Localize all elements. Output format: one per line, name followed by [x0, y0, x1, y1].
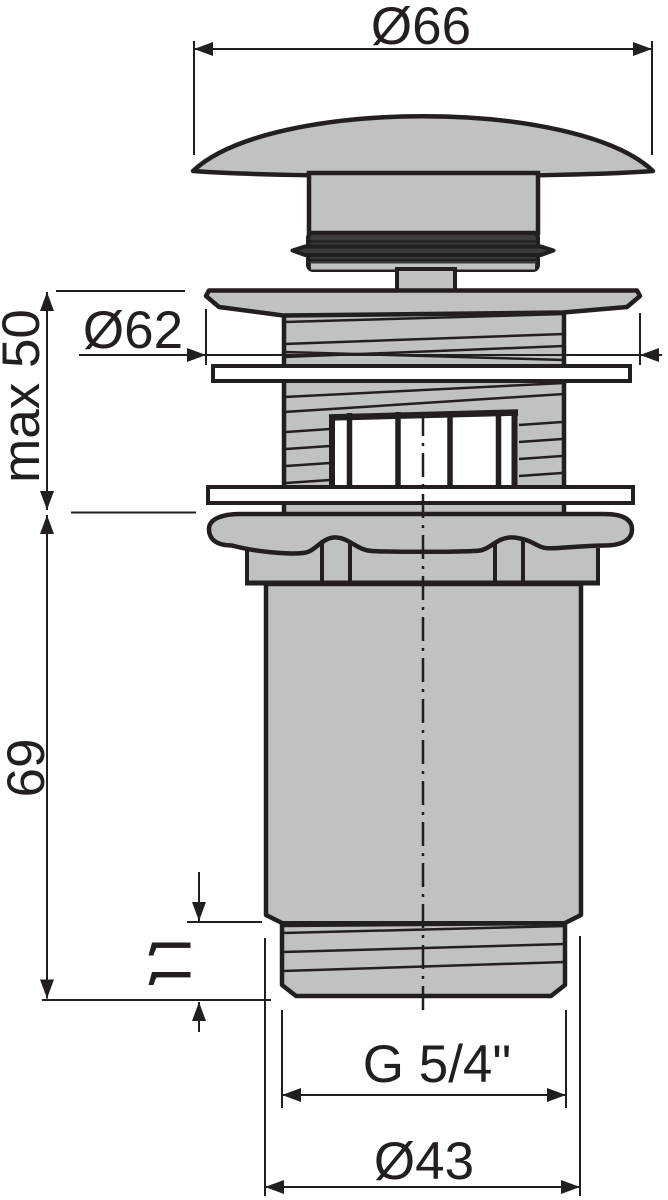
svg-text:Ø43: Ø43	[374, 1132, 474, 1191]
svg-text:69: 69	[0, 739, 56, 798]
svg-text:Ø62: Ø62	[83, 301, 183, 360]
svg-text:G 5/4": G 5/4"	[363, 1035, 511, 1094]
svg-text:Ø66: Ø66	[371, 0, 471, 56]
svg-text:max 50: max 50	[0, 309, 51, 483]
